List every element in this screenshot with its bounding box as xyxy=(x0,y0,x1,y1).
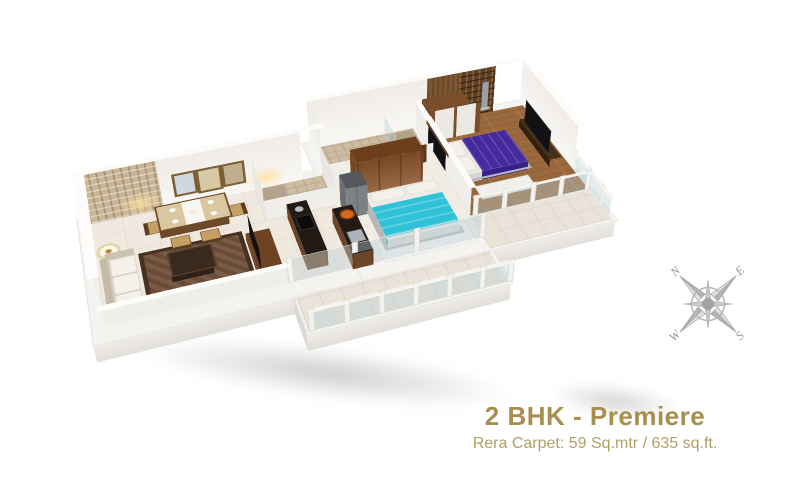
cooking-pot xyxy=(294,205,305,212)
picture-frame xyxy=(220,160,246,187)
compass-south-label: S xyxy=(733,329,747,343)
picture-frame xyxy=(195,165,224,194)
fruit-bowl xyxy=(338,208,358,221)
compass-hub xyxy=(700,296,717,313)
compass-east-label: E xyxy=(731,263,747,279)
cooktop xyxy=(295,214,316,231)
floorplan-page: N E S W 2 BHK - Premiere Rera Carpet: 59… xyxy=(0,0,800,500)
caption: 2 BHK - Premiere Rera Carpet: 59 Sq.mtr … xyxy=(420,401,770,453)
plan-subtitle: Rera Carpet: 59 Sq.mtr / 635 sq.ft. xyxy=(420,435,770,453)
plan-title: 2 BHK - Premiere xyxy=(420,401,770,432)
compass-west-label: W xyxy=(666,326,684,344)
picture-frame xyxy=(171,170,199,197)
compass-rose: N E S W xyxy=(652,248,764,360)
apartment-plan xyxy=(69,100,683,413)
